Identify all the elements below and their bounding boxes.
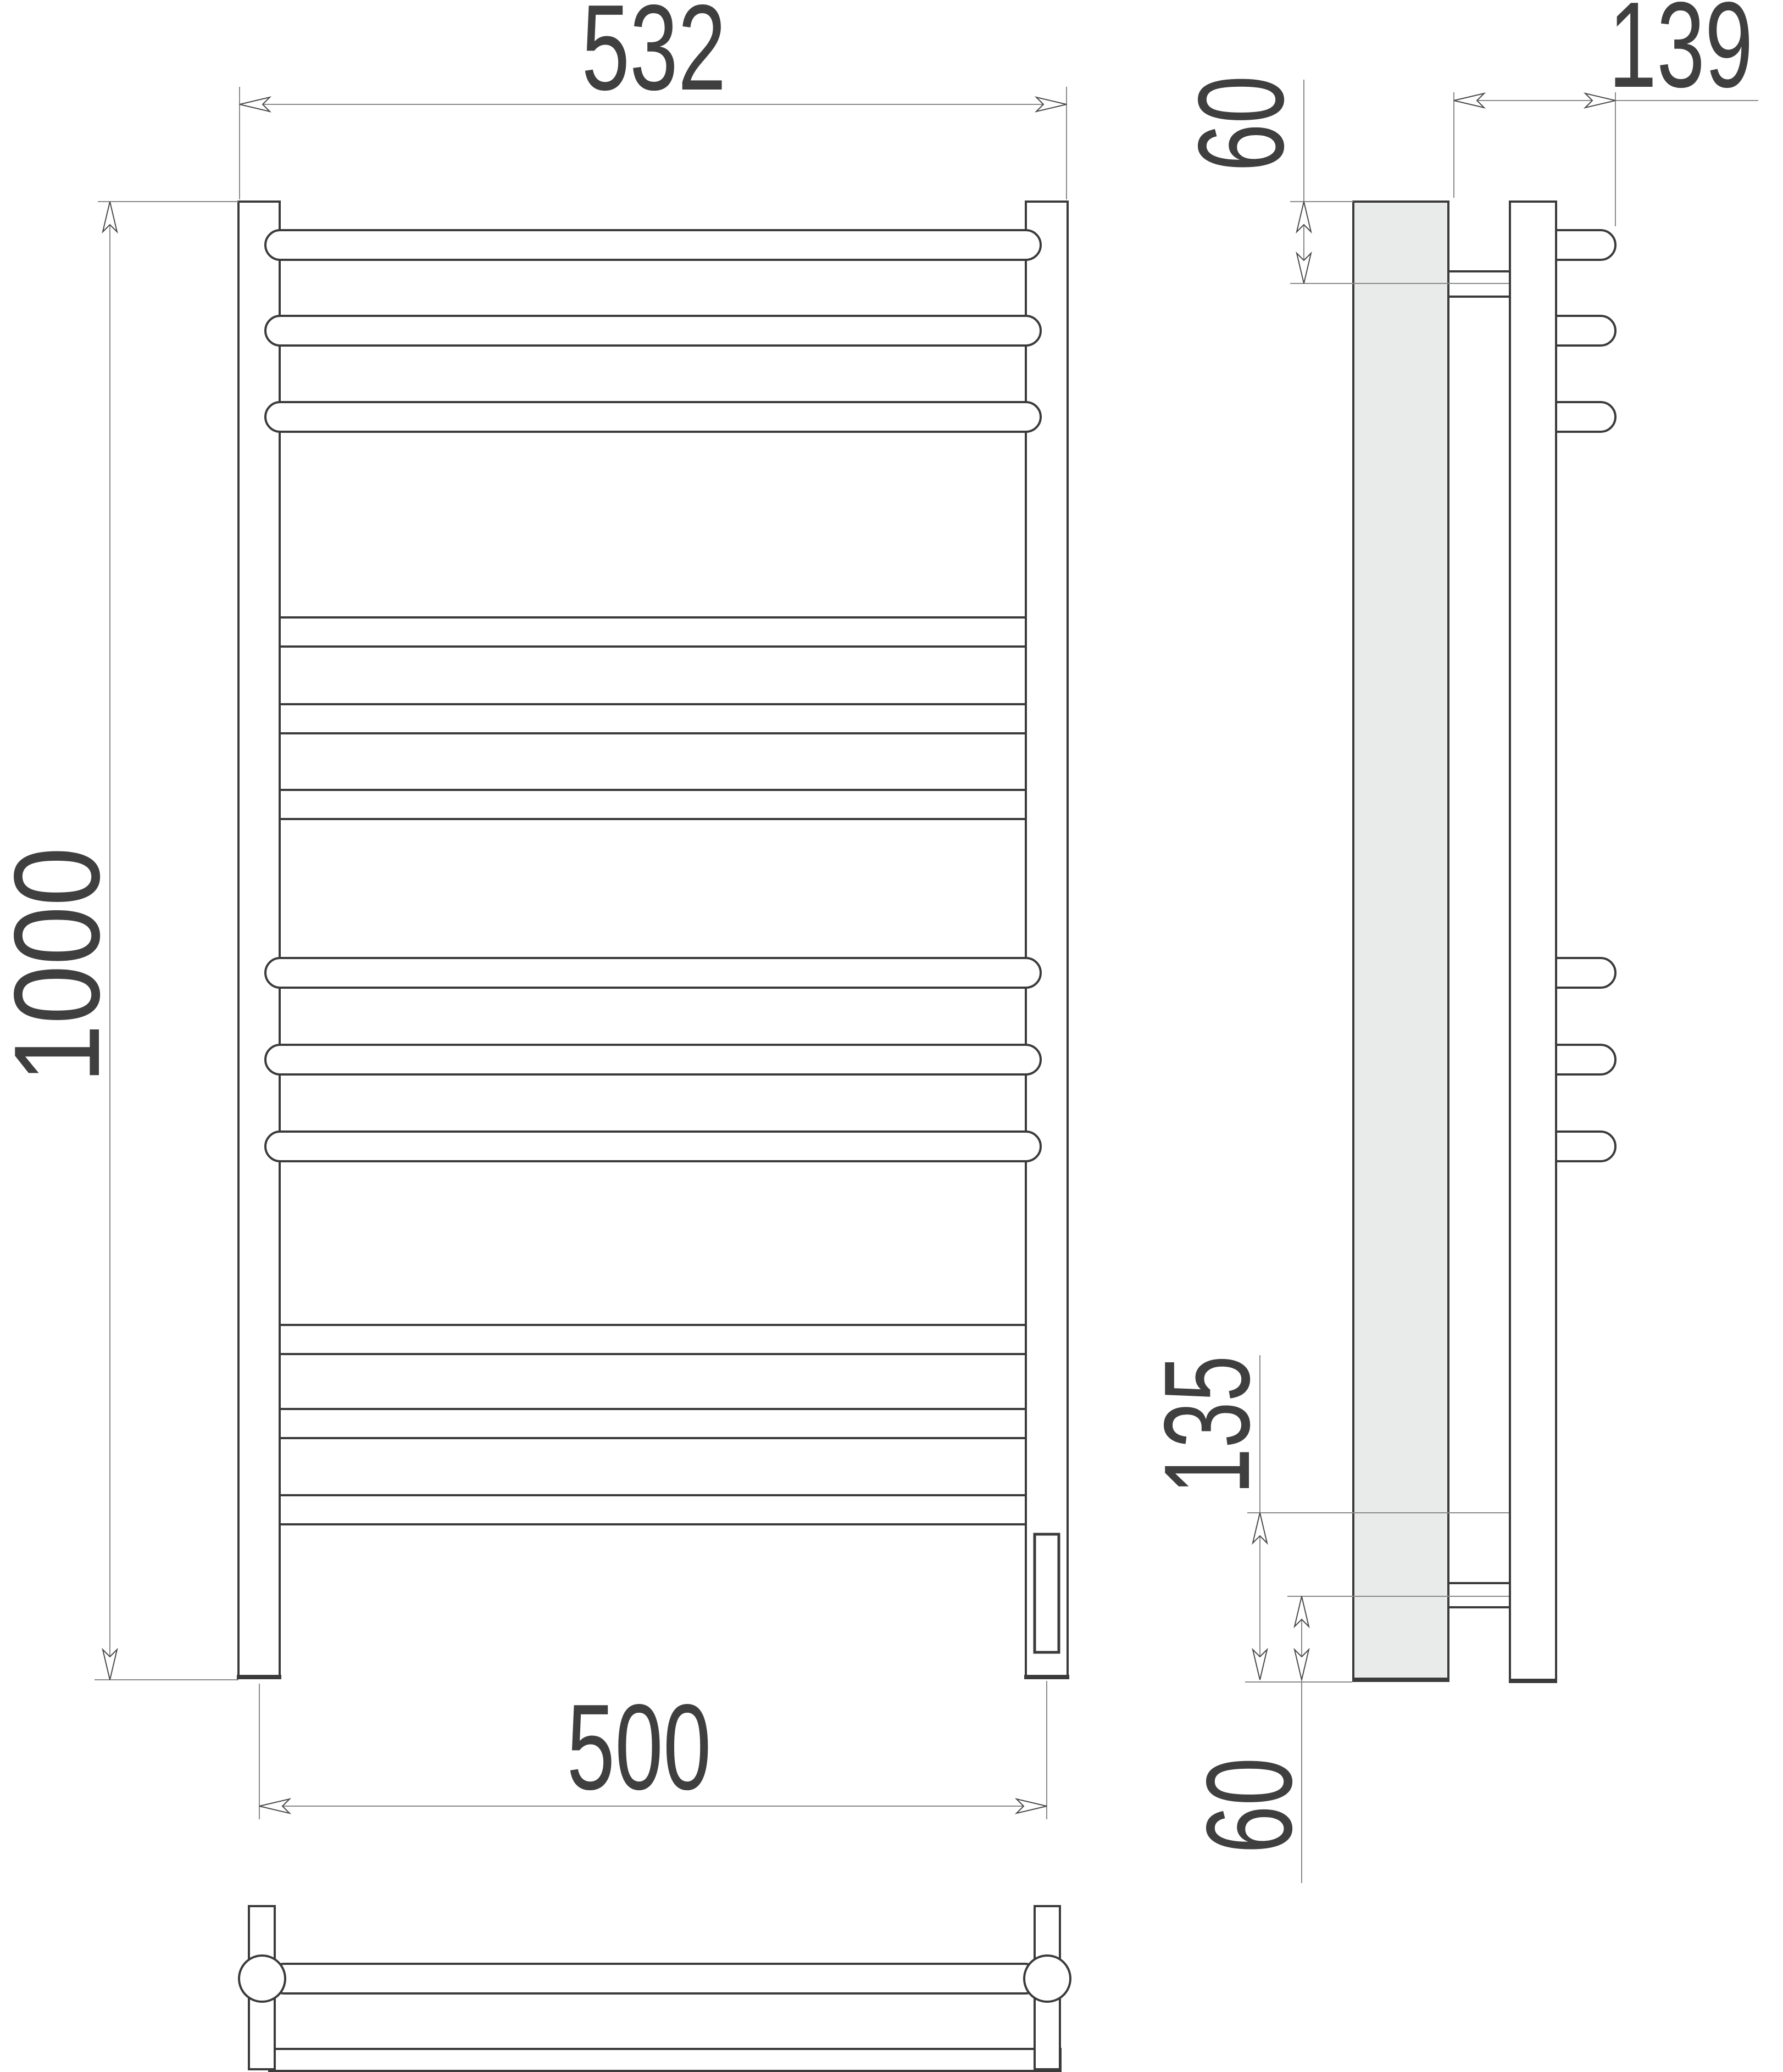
bottom-bracket: [1448, 1583, 1510, 1607]
plan-wall-profile: [269, 2049, 1060, 2071]
rung-stub: [1556, 316, 1615, 346]
towel-rail-drawing: 532 1000 500: [0, 0, 1783, 2072]
side-post: [1510, 202, 1556, 1682]
dim-bottom-rung-offset: 135: [1139, 1356, 1275, 1495]
side-rung-stubs: [1556, 230, 1615, 1161]
short-rung: [280, 1409, 1026, 1438]
rung-stub: [1556, 402, 1615, 432]
drawing-page: 532 1000 500: [0, 0, 1783, 2072]
rung-stub: [1556, 230, 1615, 260]
wall-profile: [1353, 202, 1448, 1681]
short-rung: [280, 790, 1026, 819]
front-view: [237, 202, 1069, 1678]
dim-overall-width: 532: [582, 0, 726, 116]
short-rung: [280, 1325, 1026, 1354]
long-rung: [265, 316, 1041, 346]
long-rung: [265, 1045, 1041, 1074]
rung-stub: [1556, 1045, 1615, 1074]
rung-stub: [1556, 958, 1615, 988]
long-rung: [265, 230, 1041, 260]
long-rung: [265, 402, 1041, 432]
front-dimensions: 532 1000 500: [0, 0, 1067, 1819]
front-long-rungs: [265, 230, 1041, 1161]
plan-view: [239, 1906, 1070, 2071]
plan-right-post-circle: [1024, 1956, 1070, 2002]
short-rung: [280, 1495, 1026, 1524]
dim-mount-width: 500: [567, 1679, 712, 1815]
plan-left-post-circle: [239, 1956, 285, 2002]
rung-stub: [1556, 1132, 1615, 1161]
short-rung: [280, 704, 1026, 733]
dim-depth: 139: [1609, 0, 1753, 113]
long-rung: [265, 1132, 1041, 1161]
plan-rung-bar: [269, 1964, 1040, 1993]
side-view: [1352, 202, 1615, 1682]
short-rung: [280, 617, 1026, 647]
dim-overall-height: 1000: [0, 847, 125, 1083]
dim-bottom-bracket-offset: 60: [1181, 1758, 1318, 1854]
dim-top-bracket-offset: 60: [1173, 76, 1309, 172]
long-rung: [265, 958, 1041, 988]
heating-element-box: [1035, 1534, 1059, 1652]
